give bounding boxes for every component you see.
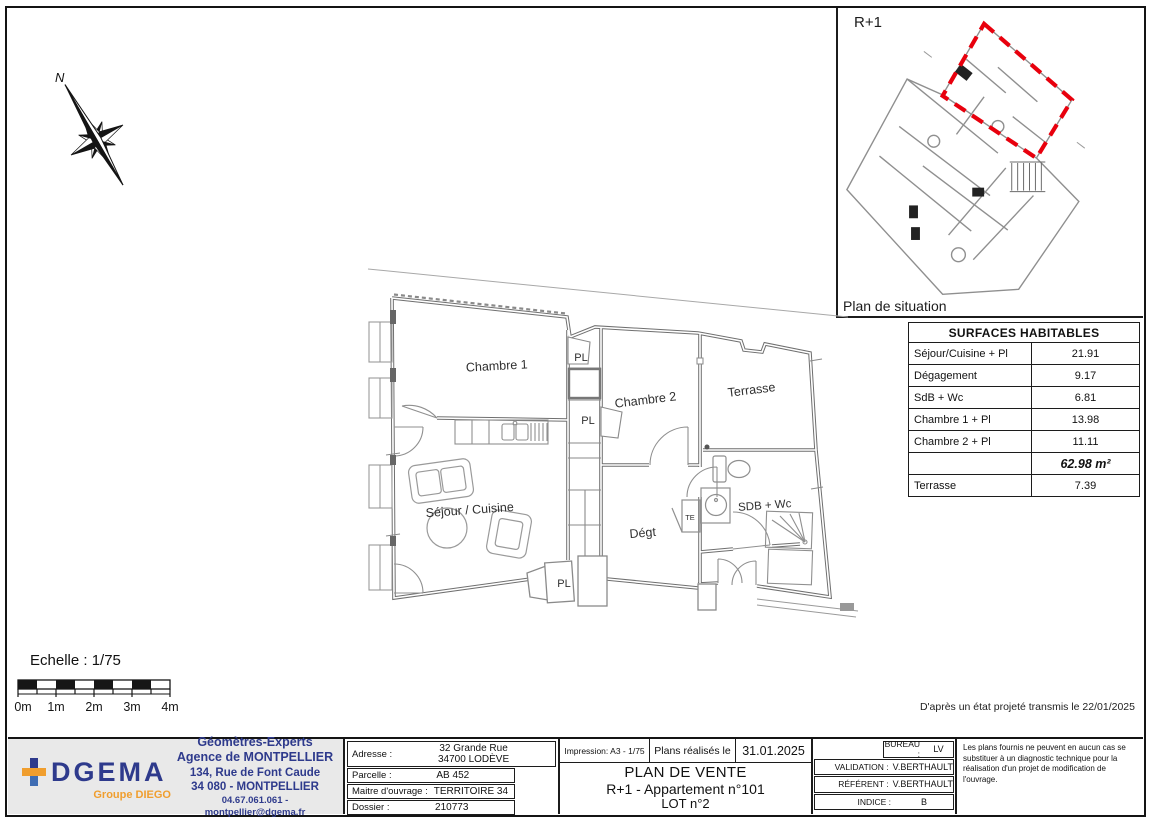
adresse-value: 32 Grande Rue 34700 LODÈVE (392, 743, 555, 766)
document-title-line2: R+1 - Appartement n°101 (606, 782, 765, 798)
adjacent-building-line (368, 269, 848, 317)
bureau-field: BUREAU : LV (883, 741, 954, 758)
project-fields-section: Adresse : 32 Grande Rue 34700 LODÈVE Par… (345, 739, 560, 814)
adresse-field: Adresse : 32 Grande Rue 34700 LODÈVE (347, 741, 556, 767)
plan-date: 31.01.2025 (736, 739, 811, 763)
indice-field: INDICE : B (814, 794, 954, 811)
document-title-line1: PLAN DE VENTE (624, 765, 746, 782)
adresse-line1: 32 Grande Rue (439, 743, 507, 754)
scale-bar: 0m 1m 2m 3m 4m (14, 674, 194, 720)
table-row: Séjour/Cuisine + Pl21.91 (909, 343, 1140, 365)
kitchen-counter (455, 420, 548, 444)
approvals-section: BUREAU : LV VALIDATION : V.BERTHAULT RÉF… (813, 739, 957, 814)
room-label-pl-bottom: PL (557, 578, 570, 590)
scale-label: Echelle : 1/75 (30, 652, 121, 669)
validation-label: VALIDATION : (815, 762, 893, 772)
shower (765, 511, 812, 585)
company-section: DGEMA Groupe DIEGO Géomètres-Experts Age… (8, 739, 345, 814)
facade-windows (369, 322, 392, 590)
dossier-label: Dossier : (348, 802, 389, 813)
table-row: Chambre 2 + Pl11.11 (909, 431, 1140, 453)
scale-tick-2: 2m (85, 700, 102, 714)
adresse-label: Adresse : (348, 749, 392, 760)
projected-state-note: D'après un état projeté transmis le 22/0… (850, 701, 1135, 713)
washbasin (701, 488, 730, 523)
room-label-sejour: Séjour / Cuisine (425, 500, 514, 520)
armchair (485, 509, 532, 559)
room-label-te: TE (685, 513, 695, 522)
agency-line: 134, Rue de Font Caude (173, 766, 337, 780)
sofa (408, 458, 475, 504)
corridor-lines (757, 599, 858, 617)
surfaces-title: SURFACES HABITABLES (909, 323, 1140, 343)
toilet (713, 456, 750, 482)
room-label-chambre2: Chambre 2 (614, 389, 677, 410)
impression-info: Impression: A3 - 1/75 (560, 739, 650, 763)
dossier-value: 210773 (389, 802, 514, 813)
plans-realises-label: Plans réalisés le (650, 739, 736, 763)
table-row: Chambre 1 + Pl13.98 (909, 409, 1140, 431)
title-block: DGEMA Groupe DIEGO Géomètres-Experts Age… (8, 737, 1143, 814)
groupe-diego-label: Groupe DIEGO (22, 789, 173, 801)
referent-field: RÉFÉRENT : V.BERTHAULT (814, 776, 954, 793)
surfaces-table: SURFACES HABITABLES Séjour/Cuisine + Pl2… (908, 322, 1140, 497)
validation-value: V.BERTHAULT (893, 762, 953, 772)
document-title-section: Impression: A3 - 1/75 Plans réalisés le … (560, 739, 813, 814)
table-row: Dégagement9.17 (909, 365, 1140, 387)
agency-line: Géomètres-Experts (173, 735, 337, 751)
situation-floor-label: R+1 (854, 14, 882, 31)
bottom-closets (527, 556, 716, 610)
scale-tick-1: 1m (47, 700, 64, 714)
dossier-field: Dossier : 210773 (347, 800, 515, 815)
agency-contact: 04.67.061.061 - montpellier@dgema.fr (173, 795, 337, 819)
room-label-chambre1: Chambre 1 (466, 357, 529, 374)
situation-plan-drawing (838, 8, 1145, 314)
adresse-line2: 34700 LODÈVE (438, 754, 509, 765)
floor-plan: Chambre 1 PL PL Chambre 2 Terrasse Séjou… (350, 255, 880, 635)
table-row: Terrasse7.39 (909, 475, 1140, 497)
apartment-highlight-outline (943, 24, 1072, 158)
disclaimer-section: Les plans fournis ne peuvent en aucun ca… (957, 739, 1143, 814)
bureau-label: BUREAU : (884, 739, 924, 759)
room-label-terrasse: Terrasse (727, 380, 776, 400)
maitre-douvrage-label: Maitre d'ouvrage : (348, 786, 428, 797)
agency-line: Agence de MONTPELLIER (173, 750, 337, 766)
indice-label: INDICE : (815, 797, 895, 807)
indice-value: B (895, 797, 953, 807)
referent-label: RÉFÉRENT : (815, 779, 893, 789)
document-title: PLAN DE VENTE R+1 - Appartement n°101 LO… (561, 764, 810, 813)
room-label-pl-top: PL (574, 352, 587, 364)
bureau-value: LV (924, 744, 953, 754)
situation-plan-box: R+1 (836, 8, 1143, 318)
dgema-logo: DGEMA Groupe DIEGO (8, 751, 173, 803)
maitre-douvrage-value: TERRITOIRE 34 (428, 786, 514, 797)
referent-value: V.BERTHAULT (893, 779, 953, 789)
room-labels: Chambre 1 PL PL Chambre 2 Terrasse Séjou… (425, 352, 792, 590)
agency-info: Géomètres-Experts Agence de MONTPELLIER … (173, 735, 343, 819)
scale-tick-4: 4m (161, 700, 178, 714)
room-label-degagement: Dégt (629, 525, 657, 541)
dgema-cross-icon (22, 758, 46, 786)
closet-strip (568, 337, 622, 560)
disclaimer-text: Les plans fournis ne peuvent en aucun ca… (963, 743, 1138, 785)
parcelle-value: AB 452 (392, 770, 514, 781)
agency-line: 34 080 - MONTPELLIER (173, 780, 337, 794)
parcelle-label: Parcelle : (348, 770, 392, 781)
north-label: N (55, 70, 65, 85)
validation-field: VALIDATION : V.BERTHAULT (814, 759, 954, 776)
dgema-wordmark: DGEMA (51, 757, 167, 788)
maitre-douvrage-field: Maitre d'ouvrage : TERRITOIRE 34 (347, 784, 515, 799)
document-title-line3: LOT n°2 (661, 797, 709, 812)
floor-plan-walls (392, 298, 830, 598)
kitchen-sink (502, 424, 514, 440)
scale-tick-3: 3m (123, 700, 140, 714)
table-row: SdB + Wc6.81 (909, 387, 1140, 409)
scale-tick-0: 0m (14, 700, 31, 714)
room-label-pl-mid: PL (581, 415, 594, 427)
parcelle-field: Parcelle : AB 452 (347, 768, 515, 783)
plan-sheet: N R+1 (0, 0, 1151, 823)
compass-star (39, 70, 149, 198)
table-row-total: 62.98 m² (909, 453, 1140, 475)
compass-rose: N (35, 58, 160, 198)
